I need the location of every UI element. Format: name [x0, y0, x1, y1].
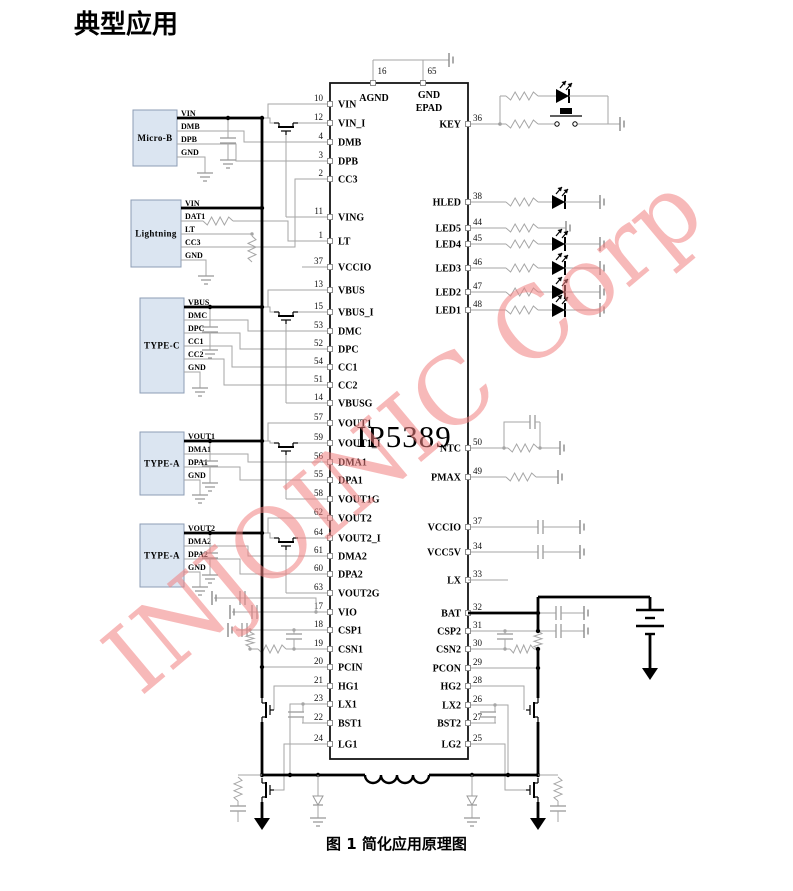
svg-text:LED3: LED3: [435, 264, 461, 275]
svg-text:15: 15: [314, 301, 324, 311]
svg-text:57: 57: [314, 412, 324, 422]
battery-symbol: [636, 597, 664, 680]
svg-text:BST1: BST1: [338, 719, 362, 730]
svg-text:26: 26: [473, 694, 483, 704]
svg-text:VING: VING: [338, 213, 364, 224]
svg-text:25: 25: [473, 733, 483, 743]
svg-text:VBUS: VBUS: [338, 286, 365, 297]
svg-text:CC2: CC2: [338, 381, 357, 392]
svg-text:65: 65: [428, 66, 438, 76]
svg-text:Micro-B: Micro-B: [137, 133, 172, 143]
led-icon: [556, 81, 572, 103]
svg-text:DAT1: DAT1: [185, 212, 205, 221]
right-wiring: [468, 81, 624, 790]
svg-text:GND: GND: [188, 471, 206, 480]
svg-text:LT: LT: [338, 237, 351, 248]
svg-text:CC1: CC1: [338, 363, 357, 374]
svg-text:GND: GND: [185, 251, 203, 260]
svg-text:18: 18: [314, 619, 324, 629]
svg-text:37: 37: [314, 256, 324, 266]
svg-text:3: 3: [319, 150, 324, 160]
svg-text:CSN1: CSN1: [338, 645, 363, 656]
svg-text:PCON: PCON: [433, 664, 462, 675]
svg-text:32: 32: [473, 602, 482, 612]
schematic-canvas: 16AGND65GNDEPAD10VIN12VIN_I4DMB3DPB2CC31…: [0, 0, 793, 891]
figure-caption: 图 1 简化应用原理图: [0, 833, 793, 854]
svg-text:Lightning: Lightning: [135, 229, 177, 239]
svg-text:DMB: DMB: [338, 138, 362, 149]
svg-text:44: 44: [473, 217, 483, 227]
svg-text:VCCIO: VCCIO: [338, 263, 372, 274]
svg-text:63: 63: [314, 582, 324, 592]
key-circuit: [496, 81, 624, 131]
svg-text:49: 49: [473, 466, 483, 476]
svg-text:LED2: LED2: [435, 288, 461, 299]
svg-text:CC3: CC3: [185, 238, 201, 247]
svg-text:45: 45: [473, 233, 483, 243]
svg-text:11: 11: [314, 206, 323, 216]
svg-text:46: 46: [473, 257, 483, 267]
svg-text:19: 19: [314, 638, 324, 648]
svg-text:DMB: DMB: [181, 122, 200, 131]
svg-text:VIN_I: VIN_I: [338, 119, 365, 130]
svg-text:37: 37: [473, 516, 483, 526]
svg-text:54: 54: [314, 356, 324, 366]
svg-text:16: 16: [378, 66, 388, 76]
svg-text:GND: GND: [188, 363, 206, 372]
svg-text:LT: LT: [185, 225, 196, 234]
svg-text:36: 36: [473, 113, 483, 123]
svg-text:2: 2: [319, 168, 324, 178]
svg-text:13: 13: [314, 279, 324, 289]
inductor-symbol: [365, 775, 429, 783]
svg-text:LX1: LX1: [338, 700, 357, 711]
bottom-network: [230, 775, 566, 830]
svg-text:VCCIO: VCCIO: [428, 523, 462, 534]
svg-text:DMC: DMC: [338, 327, 362, 338]
svg-text:GND: GND: [418, 90, 440, 101]
mosfet-icon: [262, 698, 274, 722]
push-button-icon: [550, 108, 582, 126]
svg-text:31: 31: [473, 620, 482, 630]
svg-text:VIO: VIO: [338, 608, 357, 619]
mosfet-icon: [262, 778, 274, 802]
svg-text:CC1: CC1: [188, 337, 204, 346]
svg-text:51: 51: [314, 374, 323, 384]
mosfet-icon: [526, 778, 538, 802]
svg-text:34: 34: [473, 541, 483, 551]
svg-text:33: 33: [473, 569, 483, 579]
svg-text:29: 29: [473, 657, 483, 667]
svg-text:GND: GND: [181, 148, 199, 157]
svg-text:1: 1: [319, 230, 324, 240]
svg-text:LED4: LED4: [435, 240, 461, 251]
svg-text:CSP2: CSP2: [437, 627, 461, 638]
svg-text:HG1: HG1: [338, 682, 359, 693]
svg-text:10: 10: [314, 93, 324, 103]
svg-text:HG2: HG2: [440, 682, 461, 693]
svg-text:53: 53: [314, 320, 324, 330]
svg-text:DPC: DPC: [338, 345, 359, 356]
svg-text:22: 22: [314, 712, 323, 722]
svg-text:VBUS_I: VBUS_I: [338, 308, 374, 319]
svg-text:VIN: VIN: [338, 100, 357, 111]
svg-text:BST2: BST2: [437, 719, 461, 730]
svg-text:VCC5V: VCC5V: [427, 548, 462, 559]
svg-text:24: 24: [314, 733, 324, 743]
svg-text:KEY: KEY: [439, 120, 461, 131]
svg-text:VOUT2G: VOUT2G: [338, 589, 380, 600]
svg-text:LED5: LED5: [435, 224, 461, 235]
svg-text:TYPE-C: TYPE-C: [144, 341, 180, 351]
svg-text:4: 4: [319, 131, 324, 141]
svg-text:12: 12: [314, 112, 323, 122]
svg-text:52: 52: [314, 338, 323, 348]
svg-text:EPAD: EPAD: [416, 103, 442, 114]
svg-text:23: 23: [314, 693, 324, 703]
svg-text:DPB: DPB: [338, 157, 358, 168]
svg-text:PCIN: PCIN: [338, 663, 363, 674]
svg-text:14: 14: [314, 392, 324, 402]
svg-text:38: 38: [473, 191, 483, 201]
svg-text:BAT: BAT: [441, 609, 461, 620]
svg-text:20: 20: [314, 656, 324, 666]
svg-text:CSN2: CSN2: [436, 645, 461, 656]
svg-text:DPB: DPB: [181, 135, 198, 144]
svg-text:LX2: LX2: [442, 701, 461, 712]
svg-text:CSP1: CSP1: [338, 626, 362, 637]
svg-text:CC2: CC2: [188, 350, 204, 359]
mosfet-icon: [274, 123, 298, 135]
svg-text:CC3: CC3: [338, 175, 357, 186]
led-icon: [552, 187, 568, 209]
mosfet-icon: [526, 698, 538, 722]
svg-text:TYPE-A: TYPE-A: [144, 459, 180, 469]
svg-text:AGND: AGND: [359, 93, 388, 104]
svg-text:DMA1: DMA1: [188, 445, 211, 454]
svg-text:DMC: DMC: [188, 311, 207, 320]
svg-text:28: 28: [473, 675, 483, 685]
svg-text:HLED: HLED: [433, 198, 461, 209]
svg-text:30: 30: [473, 638, 483, 648]
svg-text:47: 47: [473, 281, 483, 291]
svg-text:LX: LX: [447, 576, 462, 587]
svg-text:17: 17: [314, 601, 324, 611]
svg-text:LG2: LG2: [442, 740, 461, 751]
mosfet-icon: [274, 312, 298, 324]
svg-text:LG1: LG1: [338, 740, 357, 751]
svg-text:DPA2: DPA2: [338, 570, 363, 581]
svg-text:21: 21: [314, 675, 323, 685]
